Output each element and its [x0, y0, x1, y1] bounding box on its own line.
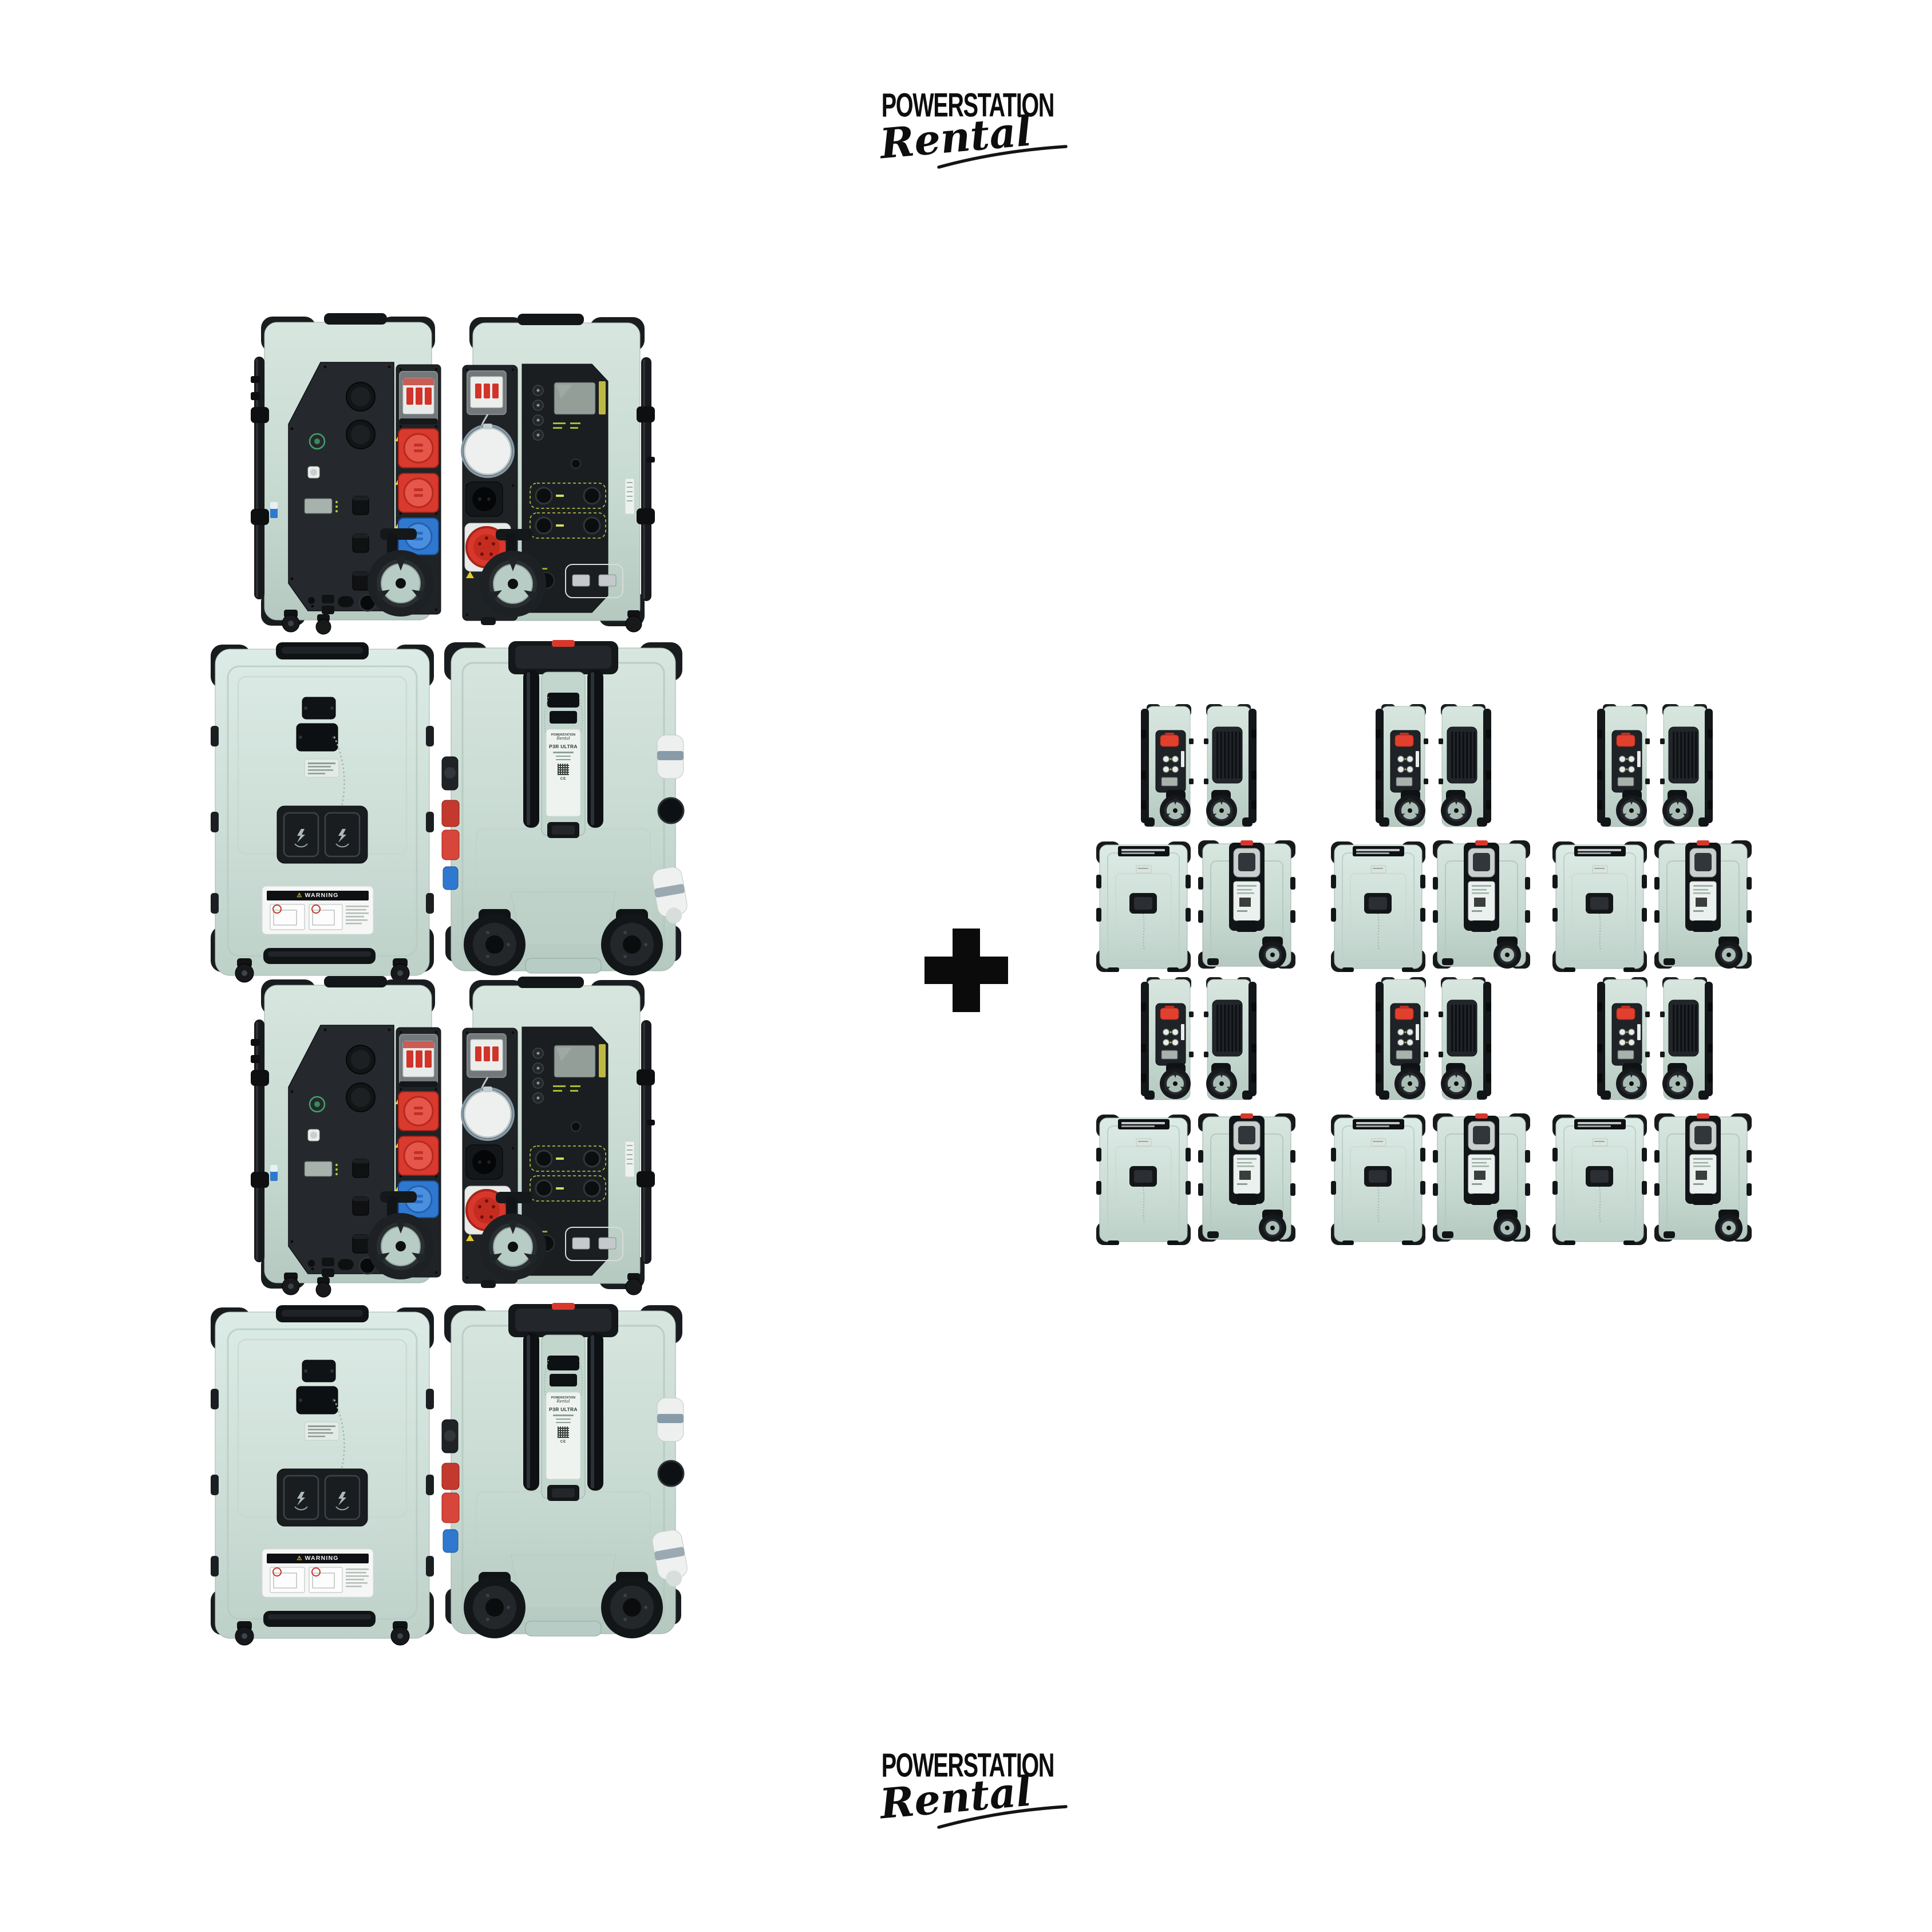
battery-pack-group: [1552, 977, 1753, 1246]
warning-label-text: WARNING: [305, 891, 339, 900]
label-spec-line: [556, 759, 571, 760]
pack-side-vent-view: [1437, 704, 1491, 831]
pack-rear-trolley-view: [1654, 1113, 1752, 1244]
battery-pack-group: [1096, 704, 1297, 973]
label-spec-line: [556, 1419, 571, 1420]
station-side-controls-view: [251, 312, 445, 633]
label-brand-script: Rental: [556, 737, 570, 741]
label-spec-line: [556, 1422, 571, 1423]
pack-lid-flat-view: [1331, 841, 1425, 972]
pack-lid-flat-view: [1331, 1115, 1425, 1245]
qr-code: [558, 1427, 569, 1438]
brand-logo-bottom: POWERSTATION Rental: [859, 1747, 1076, 1856]
pack-side-vent-view: [1437, 977, 1491, 1104]
battery-pack-group: [1331, 704, 1531, 973]
pack-side-vent-view: [1202, 704, 1257, 831]
product-collage-page: { "logo": { "title": "POWERSTATION", "su…: [0, 0, 1932, 1932]
pack-side-controls-view: [1376, 977, 1430, 1104]
qr-code: [558, 764, 569, 775]
pack-side-vent-view: [1658, 704, 1713, 831]
warning-icon: ⚠: [297, 1554, 302, 1563]
pack-rear-trolley-view: [1654, 840, 1752, 971]
station-side-display-view: [458, 314, 655, 631]
product-spec-label: POWERSTATION Rental P3R ULTRA CE: [546, 1392, 580, 1479]
plus-separator: +: [924, 929, 1008, 1012]
station-front-flat-view: [211, 642, 434, 986]
pack-side-vent-view: [1202, 977, 1257, 1104]
pack-side-controls-view: [1597, 977, 1652, 1104]
warning-icon: ⚠: [297, 891, 302, 900]
pack-rear-trolley-view: [1198, 840, 1295, 971]
warning-label-text: WARNING: [305, 1554, 339, 1563]
brand-script: Rental: [879, 1771, 1034, 1825]
battery-pack-group: [1552, 704, 1753, 973]
battery-pack-group: [1096, 977, 1297, 1246]
label-model: P3R ULTRA: [549, 1406, 578, 1412]
pack-lid-flat-view: [1552, 1115, 1647, 1245]
label-model: P3R ULTRA: [549, 744, 578, 749]
label-cert: CE: [560, 777, 566, 781]
pack-rear-trolley-view: [1433, 1113, 1530, 1244]
station-front-flat-view: [211, 1305, 434, 1649]
brand-script: Rental: [879, 110, 1034, 165]
plus-icon: [924, 957, 1008, 984]
pack-lid-flat-view: [1096, 1115, 1191, 1245]
pack-side-controls-view: [1141, 977, 1195, 1104]
pack-side-controls-view: [1597, 704, 1652, 831]
pack-lid-flat-view: [1552, 841, 1647, 972]
product-spec-label: POWERSTATION Rental P3R ULTRA CE: [546, 729, 580, 816]
label-spec-line: [553, 752, 574, 753]
pack-side-controls-view: [1376, 704, 1430, 831]
station-side-controls-view: [251, 975, 445, 1295]
pack-side-controls-view: [1141, 704, 1195, 831]
warning-label: ⚠ WARNING: [267, 1554, 369, 1563]
label-spec-line: [553, 1415, 574, 1416]
label-spec-line: [556, 756, 571, 757]
pack-side-vent-view: [1658, 977, 1713, 1104]
battery-pack-group: [1331, 977, 1531, 1246]
label-cert: CE: [560, 1440, 566, 1444]
pack-rear-trolley-view: [1198, 1113, 1295, 1244]
station-side-display-view: [458, 977, 655, 1294]
label-brand-script: Rental: [556, 1400, 570, 1404]
warning-label: ⚠ WARNING: [267, 891, 369, 900]
brand-logo-top: POWERSTATION Rental: [859, 87, 1076, 196]
pack-lid-flat-view: [1096, 841, 1191, 972]
pack-rear-trolley-view: [1433, 840, 1530, 971]
